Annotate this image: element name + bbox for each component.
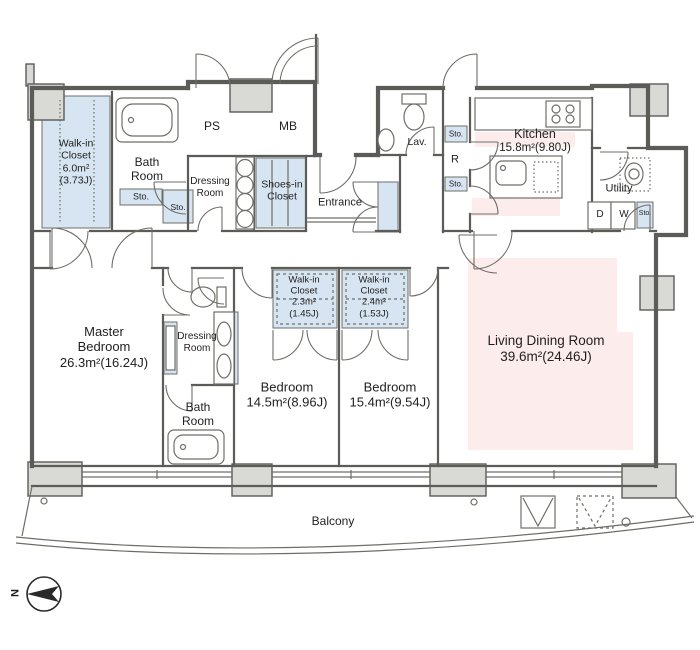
floor-plan: Walk-in Closet 6.0m² (3.73J) Bath Room P…	[0, 0, 700, 650]
bedroom-1-label: Bedroom 14.5m²(8.96J)	[247, 380, 328, 411]
refrigerator-label: R	[451, 154, 459, 167]
bathtub-icon	[116, 98, 178, 142]
walkin-closet-6-label: Walk-in Closet 6.0m² (3.73J)	[59, 137, 94, 187]
balcony-railing	[16, 486, 694, 554]
storage-label-4: Sto.	[449, 179, 463, 188]
ps-label: PS	[204, 119, 220, 133]
kitchen-island	[490, 156, 562, 198]
dressing-room-top-label: Dressing Room	[190, 176, 229, 200]
storage-label-5: Sto.	[639, 210, 651, 218]
utility-label: Utility	[606, 183, 633, 196]
storage-label-1: Sto.	[133, 192, 149, 203]
entrance-label: Entrance	[318, 197, 362, 210]
bathtub-icon-2	[168, 430, 224, 464]
bedroom-2-label: Bedroom 15.4m²(9.54J)	[350, 380, 431, 411]
balcony-label: Balcony	[312, 514, 355, 528]
mb-label: MB	[279, 119, 297, 133]
bath-room-bottom-label: Bath Room	[182, 400, 214, 428]
dressing-room-mid-label: Dressing Room	[177, 331, 216, 355]
washer-label: W	[619, 209, 628, 221]
window-band	[32, 466, 656, 486]
stove-icon	[546, 101, 580, 127]
walkin-closet-23-label: Walk-in Closet 2.3m² (1.45J)	[288, 275, 319, 320]
compass-icon	[27, 577, 61, 611]
dryer-label: D	[596, 209, 603, 221]
walkin-closet-24-label: Walk-in Closet 2.4m² (1.53J)	[358, 275, 389, 320]
entrance-step	[306, 218, 376, 222]
compass-north-label: N	[10, 589, 23, 597]
master-bedroom-label: Master Bedroom 26.3m²(16.24J)	[60, 324, 148, 370]
lav-label: Lav.	[407, 136, 426, 148]
shoes-in-closet-label: Shoes-in Closet	[261, 179, 302, 204]
balcony-vent-squares	[521, 496, 613, 528]
hanger-strip	[236, 157, 254, 229]
living-dining-room-label: Living Dining Room 39.6m²(24.46J)	[487, 333, 604, 365]
storage-label-2: Sto.	[170, 202, 185, 212]
bath-room-top-label: Bath Room	[131, 155, 163, 183]
kitchen-label: Kitchen 15.8m²(9.80J)	[499, 127, 571, 155]
storage-label-3: Sto.	[449, 129, 463, 138]
